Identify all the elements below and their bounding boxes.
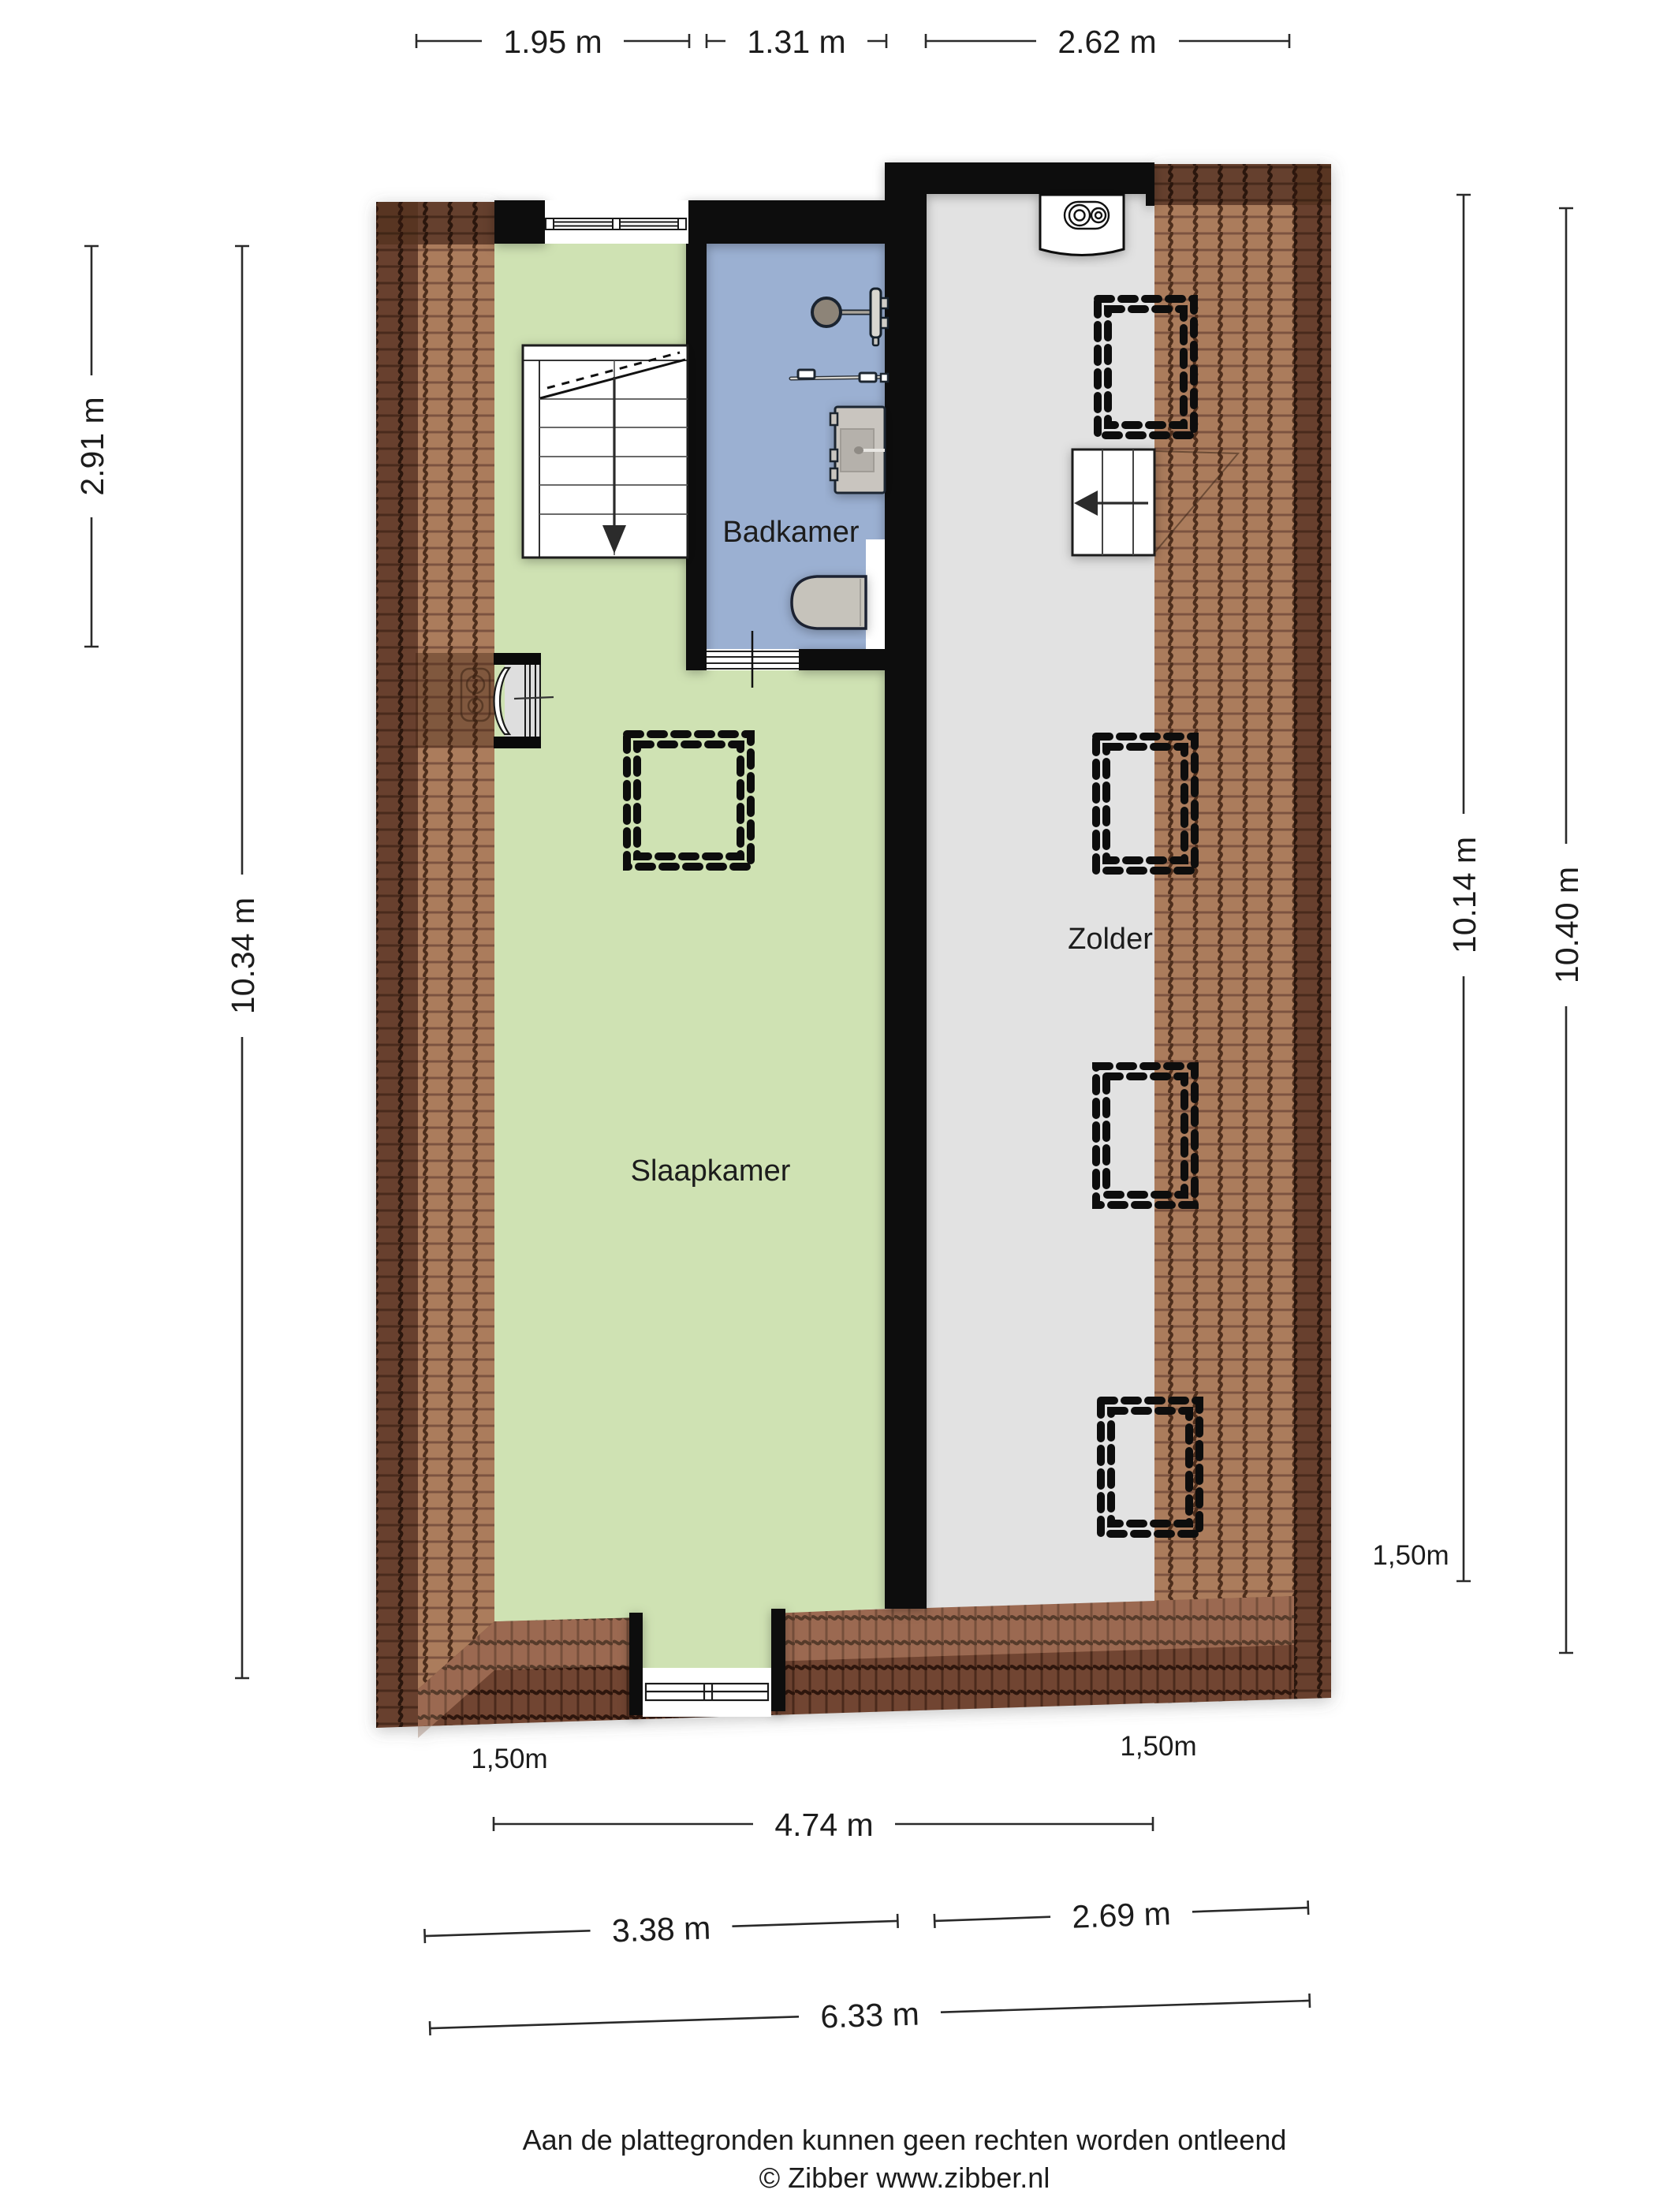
svg-text:1,50m: 1,50m bbox=[471, 1744, 547, 1774]
svg-text:1.95 m: 1.95 m bbox=[503, 24, 602, 60]
svg-text:Badkamer: Badkamer bbox=[722, 516, 860, 549]
svg-text:© Zibber www.zibber.nl: © Zibber www.zibber.nl bbox=[759, 2162, 1050, 2194]
svg-text:Aan de plattegronden kunnen ge: Aan de plattegronden kunnen geen rechten… bbox=[523, 2124, 1287, 2156]
svg-text:2.69 m: 2.69 m bbox=[1072, 1895, 1172, 1934]
svg-text:Slaapkamer: Slaapkamer bbox=[631, 1154, 791, 1188]
svg-text:3.38 m: 3.38 m bbox=[611, 1910, 711, 1949]
svg-text:Zolder: Zolder bbox=[1068, 923, 1153, 956]
svg-text:2.62 m: 2.62 m bbox=[1057, 24, 1156, 60]
svg-text:1,50m: 1,50m bbox=[1120, 1731, 1196, 1762]
svg-text:1.31 m: 1.31 m bbox=[747, 24, 845, 60]
svg-text:10.40 m: 10.40 m bbox=[1549, 867, 1585, 983]
svg-text:10.14 m: 10.14 m bbox=[1446, 837, 1483, 953]
svg-text:4.74 m: 4.74 m bbox=[774, 1807, 873, 1843]
svg-text:1,50m: 1,50m bbox=[1372, 1540, 1449, 1571]
svg-text:10.34 m: 10.34 m bbox=[225, 897, 261, 1014]
svg-text:6.33 m: 6.33 m bbox=[820, 1996, 920, 2035]
svg-text:2.91 m: 2.91 m bbox=[74, 397, 110, 495]
